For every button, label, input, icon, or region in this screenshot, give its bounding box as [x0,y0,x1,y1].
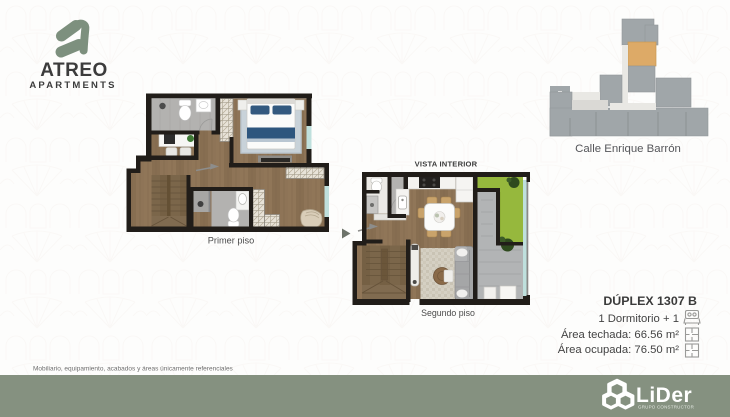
svg-text:Mobiliario, equipamiento, acab: Mobiliario, equipamiento, acabados y áre… [33,366,234,373]
svg-text:Primer piso: Primer piso [208,236,254,246]
svg-text:Calle Enrique Barrón: Calle Enrique Barrón [575,143,681,155]
svg-text:Área techada: 66.56 m²: Área techada: 66.56 m² [561,328,679,341]
svg-text:DÚPLEX 1307 B: DÚPLEX 1307 B [603,293,697,308]
svg-text:GRUPO CONSTRUCTOR: GRUPO CONSTRUCTOR [638,405,695,410]
svg-text:1 Dormitorio + 1: 1 Dormitorio + 1 [598,313,679,325]
svg-text:Segundo piso: Segundo piso [421,308,475,318]
svg-text:ATREO: ATREO [40,60,108,81]
svg-text:APARTMENTS: APARTMENTS [29,80,116,91]
svg-text:Área ocupada: 76.50 m²: Área ocupada: 76.50 m² [558,343,679,356]
svg-text:VISTA INTERIOR: VISTA INTERIOR [415,160,478,169]
